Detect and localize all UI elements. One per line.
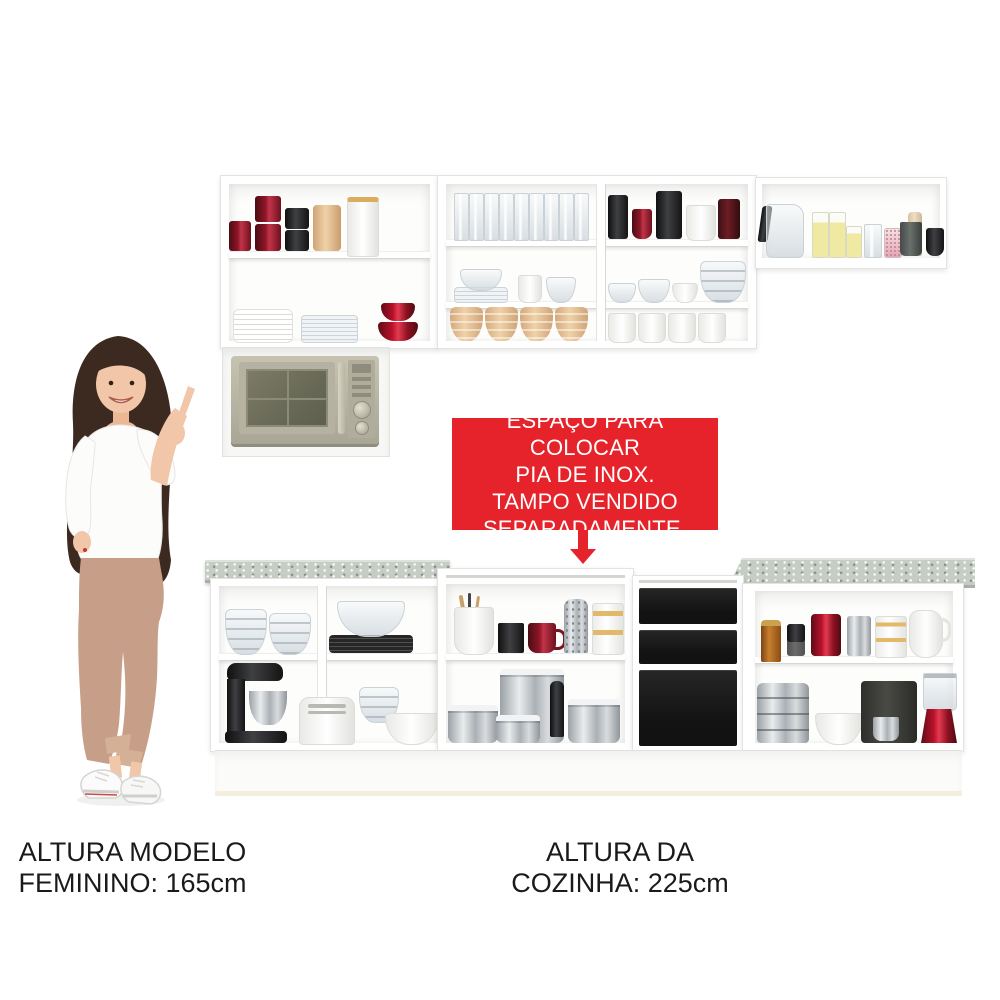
upper-cabinet-left [220,175,439,349]
microwave-dial-small [355,421,369,435]
microwave-display [352,364,371,373]
yellow-glass [812,212,829,258]
microwave-dial [353,401,371,419]
rail-groove [639,580,737,583]
down-arrow-stem [578,530,588,550]
black-drawer [639,588,737,624]
yellow-glass-short [846,226,862,258]
metal-grater [564,599,588,653]
sneaker-stripe-1 [85,794,117,795]
upper-cabinet-right [755,177,947,269]
drinking-glass [559,193,574,241]
drinking-glass [514,193,529,241]
red-canister [229,221,251,251]
model-eye-right [130,381,135,386]
sink-base-cabinet [437,568,634,752]
sink-callout-box: ESPAÇO PARA COLOCAR PIA DE INOX. TAMPO V… [452,418,718,530]
mixer-base [225,731,287,743]
kitchen-height-caption: ALTURA DA COZINHA: 225cm [495,837,745,899]
black-cylinder [656,191,682,239]
pepper-mill [550,681,564,737]
red-mug [632,209,652,239]
clear-glass [864,224,882,258]
toaster-slot [308,704,346,708]
stainless-pot [568,699,620,743]
upper-cabinet-middle [437,175,757,349]
white-cup [638,313,666,343]
drinking-glass [484,193,499,241]
white-pitcher [909,610,943,658]
white-canister-gold-trim [592,603,624,655]
white-jar-gold-trim [347,197,379,257]
model-height-line-1: ALTURA MODELO [10,837,255,868]
red-canister [255,196,281,222]
black-door [639,670,737,746]
model-photo [25,330,230,808]
microwave-buttons [352,377,371,397]
lower-cabinet-right [742,583,964,752]
drawer-module [632,575,744,752]
lower-cabinet-left [210,578,447,752]
microwave-window [246,369,328,427]
sneaker-sole-1 [83,791,119,792]
model-sneaker-back [121,776,161,804]
dark-bottle [787,624,805,656]
coffee-carafe [873,717,899,741]
model-hand-pointing [165,421,185,445]
stainless-pot [448,705,498,743]
stand-mixer [225,655,291,743]
model-hand-left [73,531,91,553]
pitcher-handle [939,618,951,642]
yellow-glass [829,212,846,258]
blender-jar [923,673,957,711]
microwave-door [239,362,335,434]
white-cup [668,313,696,343]
black-cup [926,228,944,256]
kitchen-product-photo: ESPAÇO PARA COLOCAR PIA DE INOX. TAMPO V… [0,0,1000,1000]
red-canister [811,614,841,656]
white-cup [698,313,726,343]
drinking-glass [454,193,469,241]
red-mug [528,623,556,653]
black-box [498,623,524,653]
toaster-slot [308,711,346,714]
mixer-column [227,679,245,735]
cabinet-divider [596,184,606,341]
silver-canister [847,616,871,656]
model-trousers [78,558,164,766]
drinking-glass [574,193,589,241]
model-nail [83,548,87,552]
mixer-bowl [249,691,287,725]
black-drawer [639,630,737,664]
black-plate-stack [329,635,413,653]
white-cup [518,275,542,303]
blender-base [921,709,957,743]
microwave-handle [338,362,345,434]
black-canister [285,230,309,251]
cabinet-shelf [229,251,430,259]
microwave-control-panel [348,360,375,438]
drinking-glass [469,193,484,241]
kitchen-height-line-2: COZINHA: 225cm [495,868,745,899]
white-mug [686,205,716,241]
model-height-caption: ALTURA MODELO FEMININO: 165cm [10,837,255,899]
glass-kettle [766,204,804,258]
callout-line-1: ESPAÇO PARA COLOCAR [452,407,718,461]
drinking-glass [529,193,544,241]
toaster [299,697,355,745]
utensil-pot [454,607,494,655]
white-cup [608,313,636,343]
callout-line-3: TAMPO VENDIDO [452,488,718,515]
rail-groove [446,575,625,578]
amber-bottle [761,620,781,662]
steamer-pot-stack [757,683,809,743]
gray-cup [900,222,922,256]
black-canister [285,208,309,229]
white-plate-stack [233,309,293,343]
dark-tumbler [608,195,628,239]
white-canister-gold-trim [875,616,907,658]
microwave [231,356,379,444]
dark-red-box [718,199,740,239]
small-stainless-pot [496,715,540,743]
coffee-machine [861,681,921,743]
callout-line-2: PIA DE INOX. [452,461,718,488]
model-eye-left [109,381,114,386]
glass-plate-stack [301,315,358,343]
kitchen-height-line-1: ALTURA DA [495,837,745,868]
drinking-glass [499,193,514,241]
model-height-line-2: FEMININO: 165cm [10,868,255,899]
tan-canister [313,205,341,251]
kick-base [215,750,962,796]
down-arrow-icon [570,549,596,564]
microwave-niche [222,347,390,457]
red-canister [255,224,281,251]
model-sleeve-left [66,436,95,538]
drinking-glass [544,193,559,241]
